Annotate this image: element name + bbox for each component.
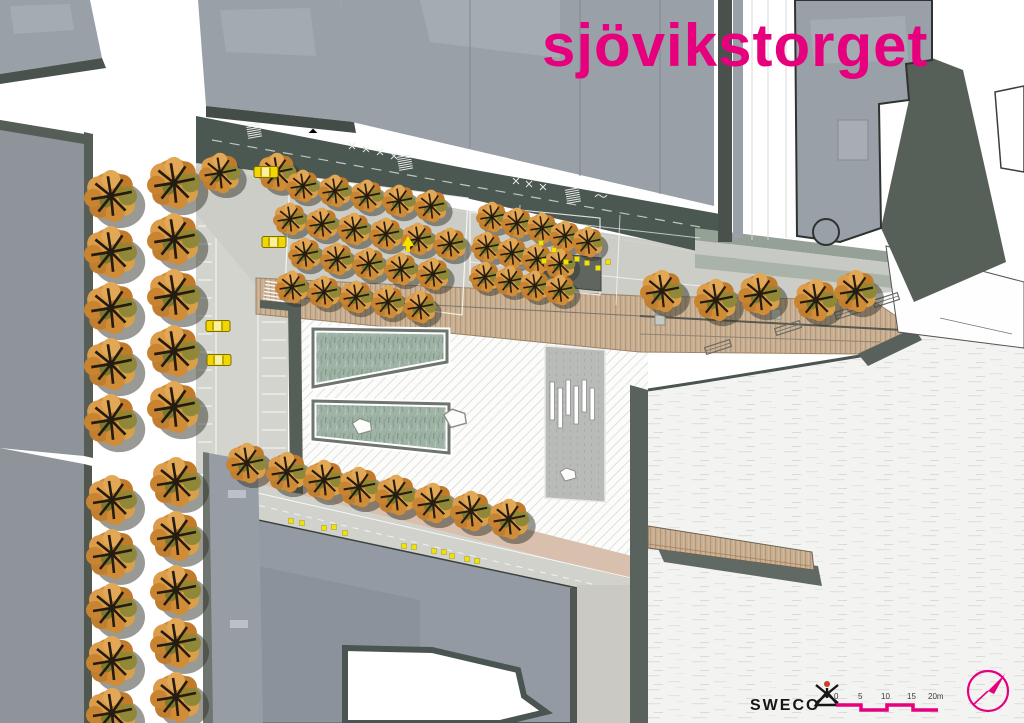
building-north-small: [198, 0, 356, 133]
pedestrian-dot: [564, 260, 569, 265]
site-plan-stage: sjövikstorget SWECO 0 5 10 15 20m: [0, 0, 1024, 723]
pedestrian-dot: [606, 260, 611, 265]
scale-label-0: 0: [834, 692, 839, 701]
pedestrian-dot: [596, 266, 601, 271]
quay-walk: [577, 585, 632, 723]
building-southwest: [0, 448, 92, 723]
pedestrian-dot: [475, 559, 480, 564]
pedestrian-dot: [542, 259, 547, 264]
pedestrian-dot: [300, 521, 305, 526]
pedestrian-dot: [343, 531, 348, 536]
pedestrian-dot: [552, 248, 557, 253]
pedestrian-dot: [412, 545, 417, 550]
pedestrian-dot: [322, 526, 327, 531]
pedestrian-dot: [289, 519, 294, 524]
pedestrian-dot: [332, 525, 337, 530]
building-west: [0, 120, 93, 458]
pedestrian-dot: [402, 544, 407, 549]
pedestrian-dot: [442, 550, 447, 555]
pedestrian-dot: [465, 557, 470, 562]
parked-car: [207, 355, 231, 366]
scale-label-5: 5: [858, 692, 863, 701]
pedestrian-dot: [575, 257, 580, 262]
pedestrian-dot: [585, 261, 590, 266]
parked-car: [262, 237, 286, 248]
pedestrian-dot: [432, 549, 437, 554]
scale-label-10: 10: [881, 692, 890, 701]
page-title: sjövikstorget: [542, 12, 928, 79]
pedestrian-dot: [539, 241, 544, 246]
scale-label-20: 20m: [928, 692, 944, 701]
site-plan-svg: sjövikstorget SWECO 0 5 10 15 20m: [0, 0, 1024, 723]
sweco-logo-text: SWECO: [750, 697, 820, 714]
building-south-alley: [203, 452, 263, 723]
pedestrian-dot: [450, 554, 455, 559]
parked-car: [206, 321, 230, 332]
scale-label-15: 15: [907, 692, 916, 701]
parked-car: [254, 167, 278, 178]
